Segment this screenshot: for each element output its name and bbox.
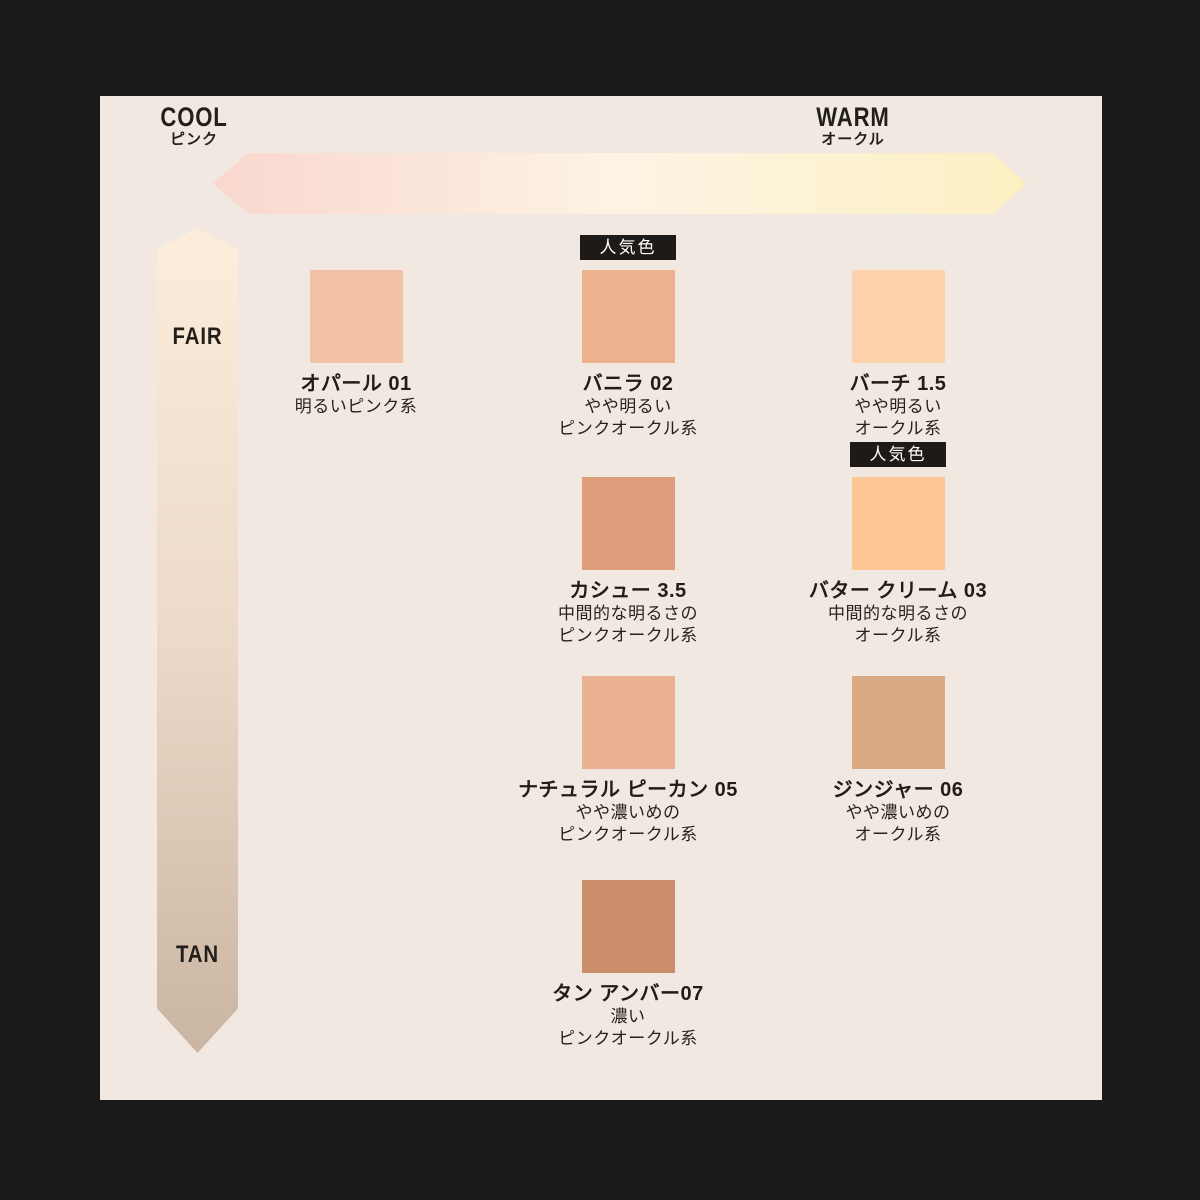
shade-description: オークル系 bbox=[778, 824, 1018, 846]
shade-description: ピンクオークル系 bbox=[508, 418, 748, 440]
shade-name: ジンジャー 06 bbox=[778, 778, 1018, 802]
shade-swatch bbox=[852, 270, 945, 363]
shade-name: カシュー 3.5 bbox=[508, 579, 748, 603]
pink-sublabel: ピンク bbox=[114, 131, 274, 149]
fair-label: FAIR bbox=[163, 323, 232, 351]
popular-color-badge: 人気色 bbox=[850, 442, 946, 467]
shade-cell-cashew-3-5: カシュー 3.5 中間的な明るさの ピンクオークル系 bbox=[508, 477, 748, 647]
shade-name: ナチュラル ピーカン 05 bbox=[508, 778, 748, 802]
warm-label: WARM bbox=[787, 103, 918, 131]
shade-description: やや明るい bbox=[778, 396, 1018, 418]
shade-cell-ginger-06: ジンジャー 06 やや濃いめの オークル系 bbox=[778, 676, 1018, 846]
shade-cell-butter-cream-03: 人気色 バター クリーム 03 中間的な明るさの オークル系 bbox=[778, 477, 1018, 647]
shade-description: やや濃いめの bbox=[778, 802, 1018, 824]
shade-swatch bbox=[582, 880, 675, 973]
shade-name: バター クリーム 03 bbox=[778, 579, 1018, 603]
shade-swatch bbox=[852, 676, 945, 769]
shade-cell-natural-pecan-05: ナチュラル ピーカン 05 やや濃いめの ピンクオークル系 bbox=[508, 676, 748, 846]
shade-cell-vanilla-02: 人気色 バニラ 02 やや明るい ピンクオークル系 bbox=[508, 270, 748, 440]
shade-name: オパール 01 bbox=[236, 372, 476, 396]
popular-color-badge: 人気色 bbox=[580, 235, 676, 260]
ochre-sublabel: オークル bbox=[773, 131, 933, 149]
shade-description: 中間的な明るさの bbox=[778, 603, 1018, 625]
shade-swatch bbox=[310, 270, 403, 363]
shade-cell-birch-1-5: バーチ 1.5 やや明るい オークル系 bbox=[778, 270, 1018, 440]
cool-warm-gradient-arrow bbox=[213, 153, 1027, 214]
shade-description: ピンクオークル系 bbox=[508, 625, 748, 647]
shade-name: タン アンバー07 bbox=[508, 982, 748, 1006]
shade-name: バニラ 02 bbox=[508, 372, 748, 396]
shade-cell-opal-01: オパール 01 明るいピンク系 bbox=[236, 270, 476, 418]
shade-chart-panel: COOL ピンク WARM オークル FAIR TAN オパール 01 明るいピ… bbox=[100, 96, 1102, 1100]
shade-description: やや濃いめの bbox=[508, 802, 748, 824]
shade-description: オークル系 bbox=[778, 418, 1018, 440]
shade-description: 明るいピンク系 bbox=[236, 396, 476, 418]
cool-axis-label: COOL ピンク bbox=[114, 103, 274, 149]
shade-cell-tan-amber-07: タン アンバー07 濃い ピンクオークル系 bbox=[508, 880, 748, 1050]
shade-description: 中間的な明るさの bbox=[508, 603, 748, 625]
shade-description: オークル系 bbox=[778, 625, 1018, 647]
shade-swatch bbox=[582, 676, 675, 769]
shade-swatch bbox=[582, 477, 675, 570]
shade-description: 濃い bbox=[508, 1006, 748, 1028]
cool-label: COOL bbox=[128, 103, 259, 131]
shade-name: バーチ 1.5 bbox=[778, 372, 1018, 396]
shade-description: やや明るい bbox=[508, 396, 748, 418]
shade-swatch bbox=[852, 477, 945, 570]
tan-label: TAN bbox=[163, 941, 232, 969]
warm-axis-label: WARM オークル bbox=[773, 103, 933, 149]
shade-swatch bbox=[582, 270, 675, 363]
shade-description: ピンクオークル系 bbox=[508, 1028, 748, 1050]
fair-tan-gradient-arrow bbox=[157, 228, 238, 1053]
shade-description: ピンクオークル系 bbox=[508, 824, 748, 846]
